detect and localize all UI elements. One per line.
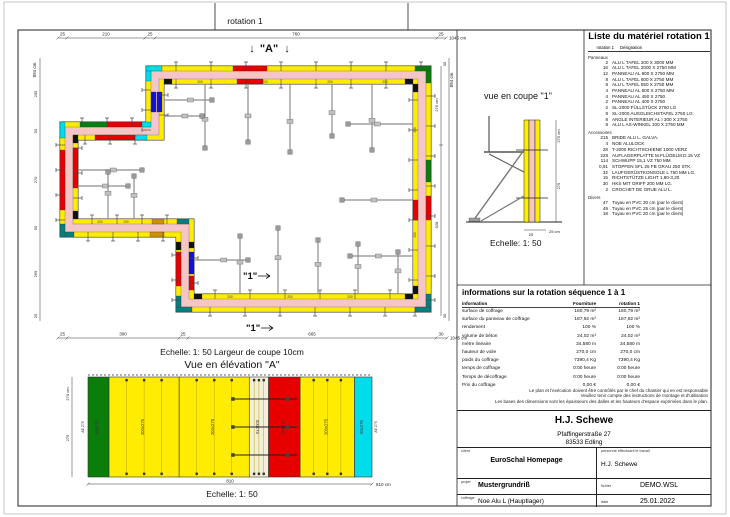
info-row-rotation: 180,79 m² [596,308,640,316]
panel-clamp [313,379,315,381]
panel-clamp [125,379,127,381]
panel-clamp [160,379,162,381]
coupe-kicker-brace [481,196,524,221]
plan-panel-segment-black [73,211,78,219]
panel-size-label: 200 [197,80,203,84]
elevation-end-label: AE 275 [81,421,85,433]
plan-panel-segment-teal [426,294,431,312]
company-name: H.J. Schewe [457,415,711,426]
info-row-label: Temps de décoffrage [462,374,552,382]
plan-panel-segment-teal [177,219,189,224]
info-row: mètre linéaire34,580 m34,580 m [462,341,640,349]
worker-label: personne effectuant le travail [601,449,650,453]
material-item-qty: 8 [588,122,608,128]
panel-clamp [231,473,233,475]
plan-panel-segment-cyan [135,135,147,140]
coupe-view: vue en coupe "1" 275 cm 275 25 25 cm Ech… [466,91,562,248]
elevation-panel-label: 90x275 [280,419,285,433]
prop-foot-plate [348,254,352,258]
dim-label: 275 [65,434,70,441]
disclaimer: Le plan et l'exécution doivent être cont… [462,388,708,404]
file-value: DEMO.WSL [640,482,678,489]
prop-foot-plate [246,140,250,144]
info-row: rendement100 %100 % [462,324,640,332]
coupe-wall-core [529,120,535,222]
formwork-label: coffrage [461,496,475,500]
plan-view: 200200200200200200200200200200200 25 210… [32,32,468,358]
elevation-title: Vue en élévation "A" [184,359,279,371]
info-row-rotation: 187,92 m² [596,316,640,324]
worker-value: H.J. Schewe [601,461,638,468]
prop-turnbuckle [287,119,293,123]
material-list-header: rotation 1 Désignation [588,45,710,52]
prop-turnbuckle [395,269,401,273]
section-1-arrow [258,274,270,279]
info-row: temps de coffrage0:00 heure0:00 heure [462,365,640,373]
elevation-panel [109,377,179,477]
info-row-fourniture: 187,92 m² [552,316,596,324]
plan-panel-segment-black [164,79,172,84]
info-table: information Fourniture rotation 1 surfac… [462,300,640,390]
tie-anchor [286,453,290,457]
elevation-panel-label: 200x275 [140,418,145,435]
dim-label: 25 [60,332,66,337]
info-row-label: mètre linéaire [462,341,552,349]
panel-size-label: 200 [382,80,388,84]
info-col-information: information [462,300,552,307]
plan-outer-panel-band [60,66,431,312]
plan-panel-segment-orange [152,219,164,224]
panel-clamp [143,473,145,475]
prop-foot-plate [238,234,242,238]
plan-panel-segment-teal [60,224,65,237]
dim-label: 30 [442,61,447,66]
plan-panel-segment-green [426,71,431,83]
section-a-arrow: ↓ [249,43,255,55]
dim-label: 665 [308,332,316,337]
info-row: Temps de décoffrage0:00 heure0:00 heure [462,374,640,382]
plan-braces [78,84,413,294]
prop-turnbuckle [245,114,251,118]
elevation-panel-label: 200x275 [323,418,328,435]
elevation-panels: 60x275200x275200x275SL200090x275200x2755… [88,377,372,477]
plan-panel-segment-cyan [146,66,162,71]
panel-clamp [125,473,127,475]
section-a-marker: "A" [260,43,278,55]
dim-total: 270 cm [65,387,70,401]
panel-size-label: 200 [347,295,353,299]
prop-turnbuckle [369,118,375,122]
title-block-line [596,447,597,507]
plan-panel-segment-green [415,66,431,71]
plan-labels: 200200200200200200200200200200200 [97,80,417,299]
elevation-panel [249,377,268,477]
info-row-fourniture: 24,02 m³ [552,333,596,341]
plan-panel-segment-blue [157,92,162,112]
info-row-rotation: 100 % [596,324,640,332]
prop-foot-plate [246,258,250,262]
dim-tick [87,483,90,486]
info-rows: surface de coffrage180,79 m²180,79 m²sur… [462,308,640,390]
info-row-rotation: 34,580 m [596,341,640,349]
dim-label: 25 [438,32,444,37]
section-1-marker: "1" [246,323,260,334]
prop-foot-plate [203,146,207,150]
dim-label: 25 [147,32,153,37]
info-row-fourniture: 7390,4 Kg [552,357,596,365]
prop-turnbuckle [275,256,281,260]
info-row-rotation: 24,02 m³ [596,333,640,341]
title-block-line [457,447,711,448]
material-item-qty: 18 [588,211,608,217]
info-title: informations sur la rotation séquence 1 … [462,288,710,297]
elevation-panel-label: 60x275 [95,419,100,433]
material-item: 8ALU L AS-WINKEL 100 X 2750 MM [588,122,710,128]
info-table-header: information Fourniture rotation 1 [462,300,640,308]
elevation-view: Vue en élévation "A" 60x275200x275200x27… [65,359,391,499]
plan-panel-segment-red [60,150,65,210]
panel-clamp [195,473,197,475]
plan-panel-segment-red [413,200,418,220]
coupe-panel-right [535,120,540,222]
info-row-fourniture: 180,79 m² [552,308,596,316]
panel-clamp [326,379,328,381]
dim-label: 275 [556,182,561,189]
panel-size-label: 200 [327,80,333,84]
title-block-line [457,478,711,479]
prop-foot-plate [106,170,110,174]
elevation-panel [269,377,301,477]
elevation-panel [88,377,109,477]
plan-panel-segment-teal [60,232,74,237]
info-row-rotation: 270,0 cm [596,349,640,357]
plan-panel-segment-red [108,122,144,127]
prop-foot-plate [288,150,292,154]
plan-panel-segment-black [413,84,418,92]
file-label: fichier [601,484,611,488]
panel-clamp [313,473,315,475]
dim-label: 628 [434,221,439,228]
prop-turnbuckle [371,198,377,202]
prop-turnbuckle [110,168,116,172]
prop-turnbuckle [355,265,361,269]
info-row-label: temps de coffrage [462,365,552,373]
section-1-marker: "1" [243,271,257,282]
coupe-bracket-diagonal [489,154,524,172]
info-row-fourniture: 100 % [552,324,596,332]
elevation-end-label: AE 275 [374,421,378,433]
prop-turnbuckle [329,111,335,115]
prop-turnbuckle [105,191,111,195]
section-1-arrow [261,326,273,331]
elevation-panel-label: 200x275 [210,418,215,435]
plan-panel-segment-teal [176,307,192,312]
plan-panel-segment-blue [151,92,156,112]
panel-size-label: 200 [413,232,417,238]
panel-clamp [258,379,260,381]
plan-panel-segment-cyan [142,122,151,127]
dim-total: 894 cm [32,62,37,77]
dim-label: 25 [60,32,66,37]
info-row-label: rendement [462,324,552,332]
plan-panel-segment-teal [176,296,181,307]
dim-total: 25 cm [549,229,561,234]
plan-segments [60,66,431,312]
prop-foot-plate [340,198,344,202]
tie-anchor [286,397,290,401]
info-col-rotation: rotation 1 [596,300,640,307]
plan-panel-segment-black [176,242,181,250]
info-row-fourniture: 0:00 heure [552,365,596,373]
prop-foot-plate [200,114,204,118]
panel-size-label: 200 [123,220,129,224]
dim-label: 269 [33,270,38,277]
dim-label: 760 [292,32,300,37]
plan-panel-segment-cyan [60,122,65,138]
plan-panel-segment-black [405,79,413,84]
plan-panel-segment-black [413,286,418,294]
panel-clamp [258,473,260,475]
panel-clamp [195,379,197,381]
dim-total: 1045 cm [449,36,467,41]
prop-turnbuckle [221,258,227,262]
plan-panel-segment-black [405,294,413,299]
info-row-fourniture: 270,0 cm [552,349,596,357]
info-row: surface du panneau de coffrage187,92 m²1… [462,316,640,324]
info-row-rotation: 0:00 heure [596,374,640,382]
panel-clamp [160,473,162,475]
panel-clamp [263,379,265,381]
plan-dim-bottom [57,337,449,340]
disclaimer-line: Les bases des dimensions sont les épaiss… [462,399,708,404]
dim-label: 30 [438,332,444,337]
prop-foot-plate [210,98,214,102]
plan-inner-panel-band [73,79,418,299]
plan-panel-segment-green [426,160,431,182]
coupe-panel-left [524,120,529,222]
dim-label: 270 [33,176,38,183]
material-list-col-qty: rotation 1 [588,45,614,50]
date-value: 25.01.2022 [640,498,675,505]
plan-panel-segment-red [189,276,194,290]
plan-panel-segment-green [80,122,108,127]
panel-size-label: 200 [287,295,293,299]
elevation-panel-label: SL2000 [255,419,260,434]
panel-clamp [340,473,342,475]
plan-panel-segment-red [426,196,431,220]
project-label: projet [461,480,471,484]
panel-size-label: 200 [413,127,417,133]
prop-turnbuckle [187,98,193,102]
coupe-prop-foot [469,218,480,222]
plan-panel-segment-teal [415,307,431,312]
info-row-fourniture: 0:00 heure [552,374,596,382]
dim-tick [371,483,374,486]
panel-clamp [326,473,328,475]
info-col-fourniture: Fourniture [552,300,596,307]
prop-turnbuckle [131,193,137,197]
plan-panel-segment-red [95,135,135,140]
panel-clamp [253,473,255,475]
elevation-scale: Echelle: 1: 50 [206,489,258,499]
prop-turnbuckle [103,184,109,188]
material-list-items: Panneaux2ALU L TAFEL 200 X 3000 MM16ALU … [588,55,710,218]
tie-anchor [231,397,235,401]
title-block-line [457,494,711,495]
plan-wall-ring [60,66,431,312]
plan-panel-segment-black [73,135,78,143]
info-row: hauteur de voile270,0 cm270,0 cm [462,349,640,357]
prop-foot-plate [330,134,334,138]
material-item-name: CROCHET DE GRUE ALU L. [612,187,672,193]
material-list-title: Liste du matériel rotation 1 [588,31,710,42]
dim-total: 275 cm [556,129,561,143]
info-row: poids du coffrage7390,4 Kg7390,4 Kg [462,357,640,365]
info-row: surface de coffrage180,79 m²180,79 m² [462,308,640,316]
dim-label: 50 [33,225,38,230]
plan-scale-note: Echelle: 1: 50 Largeur de coupe 10cm [160,347,304,357]
material-list: Liste du matériel rotation 1 rotation 1 … [588,31,710,217]
panel-clamp [213,379,215,381]
dim-label: 205 [33,90,38,97]
info-row-label: hauteur de voile [462,349,552,357]
tie-anchor [231,453,235,457]
prop-turnbuckle [315,262,321,266]
dim-label: 25 [180,332,186,337]
panel-size-label: 200 [262,80,268,84]
client-label: client [461,449,470,453]
material-item-name: Tuyau en PVC 20 cm (par le client) [612,211,683,217]
prop-foot-plate [396,250,400,254]
plan-panel-segment-orange [150,232,164,237]
dim-label: 810 [226,479,234,484]
drawing-sheet: rotation 1 20020020020020020020020020020… [0,0,730,517]
dim-label: 210 [102,32,110,37]
prop-turnbuckle [202,117,208,121]
prop-foot-plate [140,168,144,172]
material-item-qty: 2 [588,187,608,193]
prop-turnbuckle [182,114,188,118]
dim-label: 30 [442,313,447,318]
panel-clamp [213,473,215,475]
coupe-title: vue en coupe "1" [484,91,552,101]
panel-clamp [340,379,342,381]
plan-panel-segment-black [194,294,202,299]
info-row-label: volume de béton [462,333,552,341]
section-a-arrow: ↓ [284,43,290,55]
title-block: H.J. Schewe Pfaffingerstraße 27 83533 Ed… [457,410,711,507]
plan-panel-segment-red [233,66,267,71]
info-row-label: poids du coffrage [462,357,552,365]
info-row-label: surface du panneau de coffrage [462,316,552,324]
prop-foot-plate [316,238,320,242]
elevation-panel [354,377,372,477]
coupe-push-pull-prop [473,150,524,221]
prop-foot-plate [126,184,130,188]
dim-label: 50 [33,128,38,133]
plan-dim-top [57,37,448,40]
client-value: EuroSchal Homepage [457,457,596,464]
info-panel: informations sur la rotation séquence 1 … [462,288,710,390]
panel-size-label: 200 [227,295,233,299]
material-item: 2CROCHET DE GRUE ALU L. [588,187,710,193]
plan-panel-segment-blue [189,252,194,274]
plan-panel-segment-black [189,242,194,248]
tie-anchor [231,425,235,429]
panel-clamp [253,379,255,381]
material-item-name: ALU L AS-WINKEL 100 X 2750 MM [612,122,684,128]
elevation-panel [300,377,354,477]
info-row-label: surface de coffrage [462,308,552,316]
material-item: 18Tuyau en PVC 20 cm (par le client) [588,211,710,217]
panel-clamp [263,473,265,475]
plan-panel-segment-red [176,252,181,286]
prop-foot-plate [132,174,136,178]
panel-clamp [143,379,145,381]
company-address2: 83533 Edling [457,439,711,446]
panel-clamp [231,379,233,381]
dim-total: 810 cm [376,482,391,487]
info-row-rotation: 7390,4 Kg [596,357,640,365]
prop-turnbuckle [237,260,243,264]
plan-panel-segment-red [73,148,78,188]
prop-foot-plate [346,122,350,126]
prop-foot-plate [276,226,280,230]
plan-title: rotation 1 [227,16,263,26]
formwork-value: Noe Alu L (Hauptlager) [478,498,544,505]
dim-label: 25 [33,313,38,318]
elevation-panel [179,377,249,477]
plan-panel-segment-cyan [146,71,151,81]
elevation-panel-label: 50x275 [359,419,364,433]
dim-total: 894 cm [449,72,454,87]
panel-size-label: 200 [97,220,103,224]
dim-label: 25 [529,232,534,237]
dim-label: 279 cm [434,98,439,112]
project-value: Mustergrundriß [478,482,530,489]
coupe-scale: Echelle: 1: 50 [490,238,542,248]
company-address1: Pfaffingerstraße 27 [457,431,711,438]
material-list-col-name: Désignation [620,45,642,50]
prop-foot-plate [370,148,374,152]
prop-foot-plate [356,242,360,246]
info-row-fourniture: 34,580 m [552,341,596,349]
info-row-rotation: 0:00 heure [596,365,640,373]
prop-turnbuckle [375,254,381,258]
prop-turnbuckle [374,122,380,126]
plan-joints [56,62,435,316]
plan-panel-segment-red [237,79,263,84]
tie-anchor [286,425,290,429]
date-label: date [601,500,608,504]
dim-label: 300 [119,332,127,337]
info-row: volume de béton24,02 m³24,02 m³ [462,333,640,341]
